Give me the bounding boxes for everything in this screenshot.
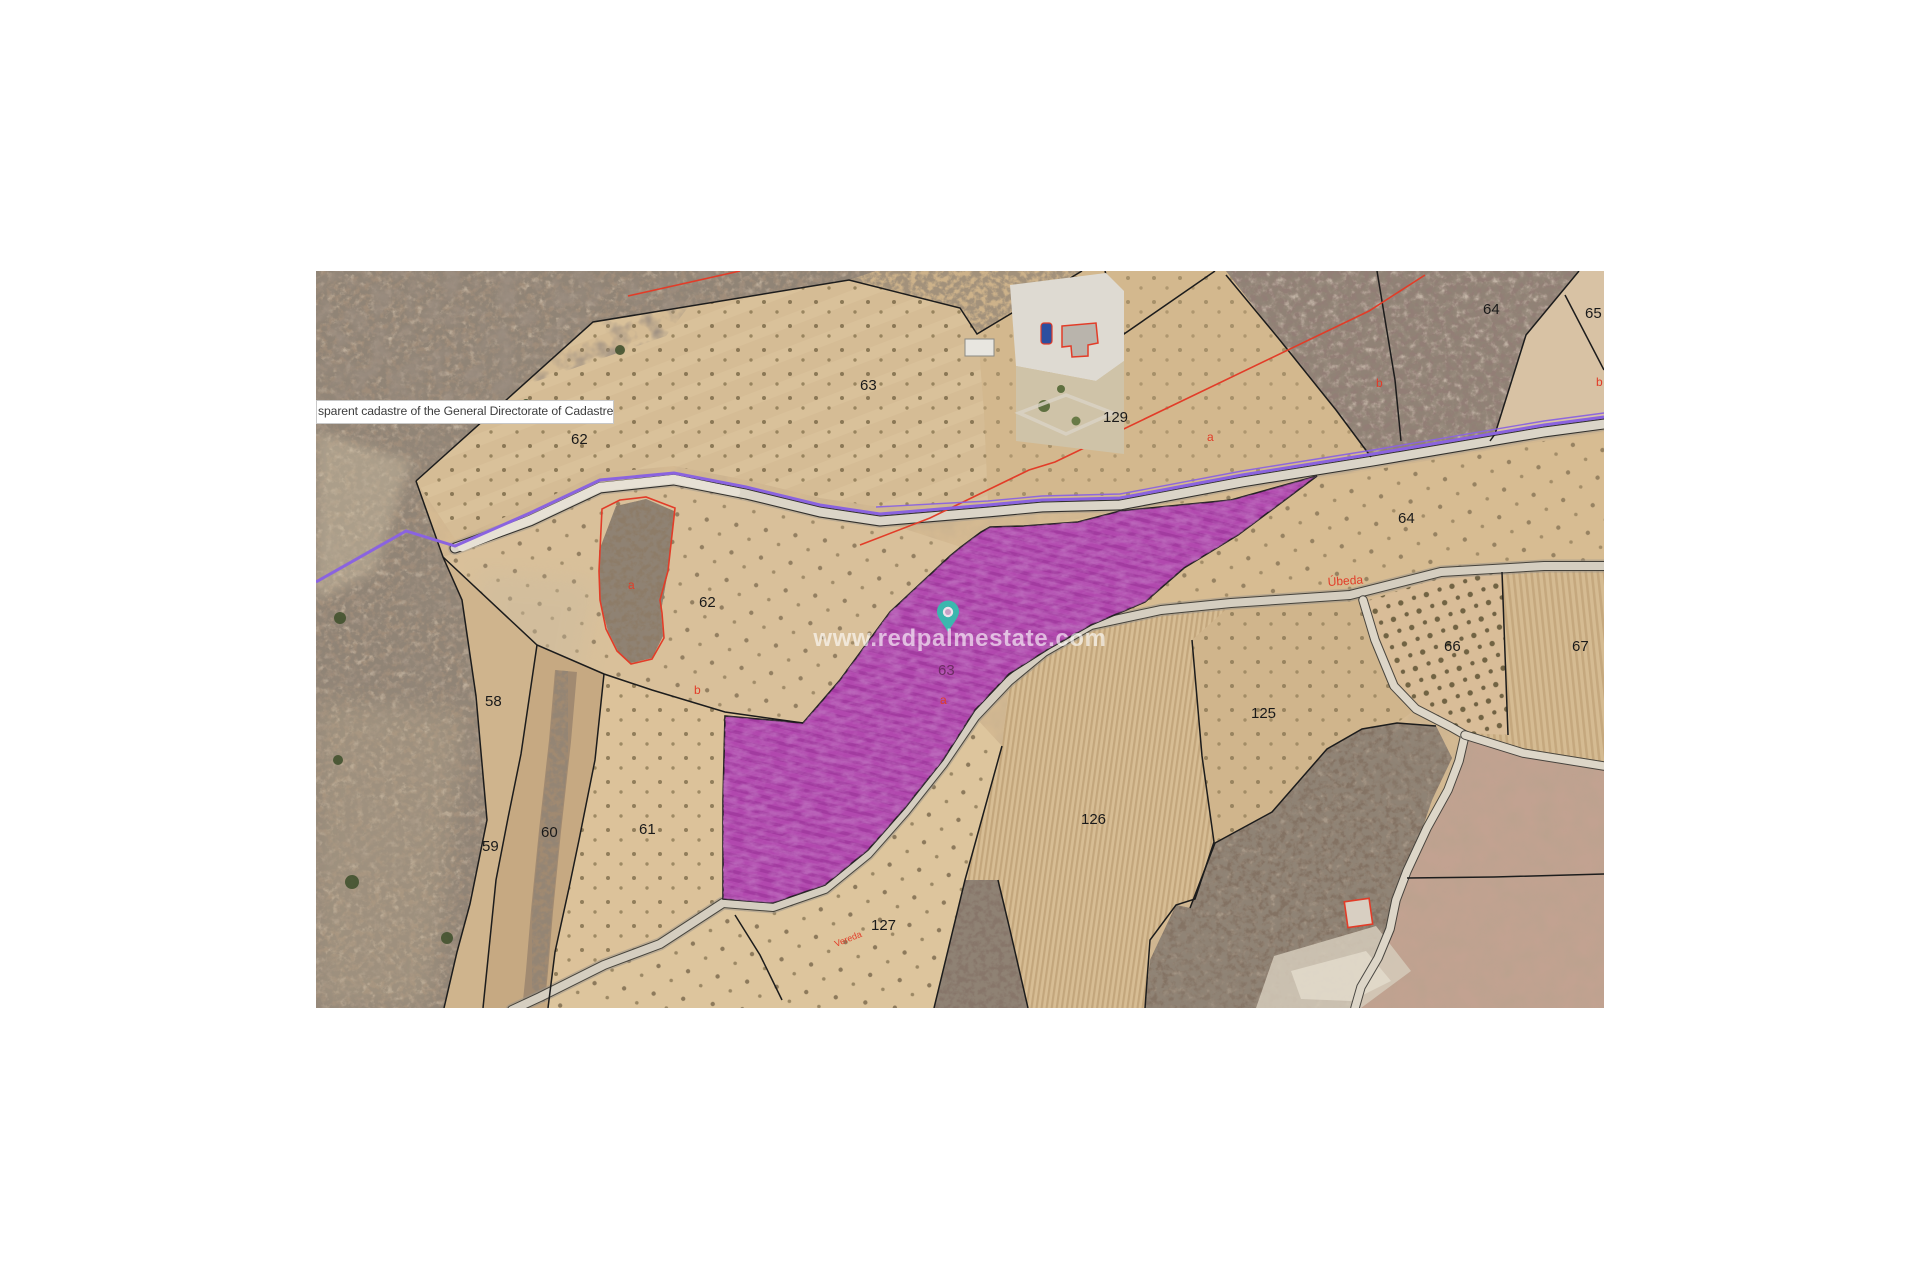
svg-text:129: 129 [1103, 409, 1128, 426]
svg-text:63: 63 [860, 377, 877, 394]
svg-text:b: b [694, 683, 701, 697]
svg-text:127: 127 [871, 917, 896, 934]
svg-text:65: 65 [1585, 305, 1602, 322]
svg-text:62: 62 [571, 431, 588, 448]
svg-text:58: 58 [485, 693, 502, 710]
svg-text:b: b [1596, 375, 1603, 389]
svg-text:63: 63 [938, 662, 955, 679]
svg-text:a: a [1207, 430, 1214, 444]
svg-text:125: 125 [1251, 705, 1276, 722]
svg-text:b: b [1376, 376, 1383, 390]
svg-text:a: a [628, 578, 635, 592]
svg-text:a: a [940, 693, 947, 707]
svg-text:126: 126 [1081, 811, 1106, 828]
svg-text:Úbeda: Úbeda [1327, 572, 1364, 589]
svg-text:64: 64 [1398, 510, 1415, 527]
svg-text:62: 62 [699, 594, 716, 611]
svg-text:60: 60 [541, 824, 558, 841]
svg-text:64: 64 [1483, 301, 1500, 318]
svg-text:61: 61 [639, 821, 656, 838]
svg-text:59: 59 [482, 838, 499, 855]
